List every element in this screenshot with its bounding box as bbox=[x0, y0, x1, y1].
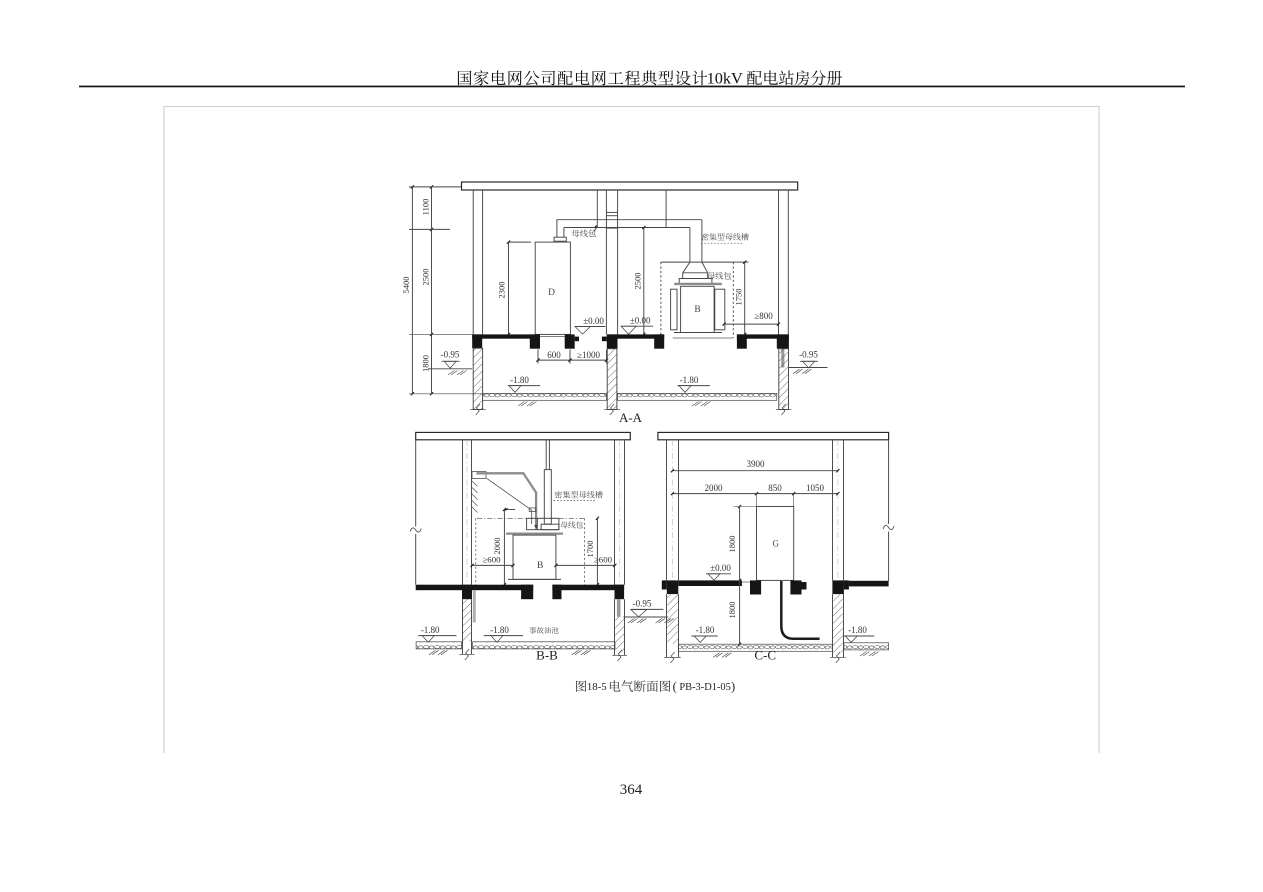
svg-text:±0.00: ±0.00 bbox=[583, 316, 604, 326]
svg-text:-1.80: -1.80 bbox=[421, 625, 440, 635]
svg-text:-0.95: -0.95 bbox=[633, 599, 652, 609]
svg-text:3900: 3900 bbox=[747, 459, 766, 469]
svg-text:-1.80: -1.80 bbox=[680, 375, 699, 385]
svg-text:600: 600 bbox=[547, 350, 561, 360]
svg-text:2500: 2500 bbox=[421, 269, 431, 286]
svg-text:): ) bbox=[731, 679, 735, 693]
svg-text:1800: 1800 bbox=[421, 355, 431, 372]
svg-text:≥1000: ≥1000 bbox=[577, 350, 600, 360]
svg-text:≥600: ≥600 bbox=[482, 554, 501, 564]
svg-text:-1.80: -1.80 bbox=[490, 625, 509, 635]
svg-text:18-5: 18-5 bbox=[587, 681, 607, 693]
svg-text:-1.80: -1.80 bbox=[696, 625, 715, 635]
svg-text:2500: 2500 bbox=[633, 273, 643, 290]
svg-text:10kV: 10kV bbox=[707, 68, 743, 87]
svg-text:1750: 1750 bbox=[733, 289, 743, 306]
svg-text:G: G bbox=[773, 539, 780, 549]
svg-text:-1.80: -1.80 bbox=[510, 375, 529, 385]
svg-text:1800: 1800 bbox=[727, 602, 737, 619]
svg-text:1050: 1050 bbox=[806, 483, 825, 493]
svg-text:1100: 1100 bbox=[421, 199, 431, 216]
svg-text:B-B: B-B bbox=[536, 648, 558, 663]
svg-text:1800: 1800 bbox=[727, 536, 737, 553]
svg-text:-1.80: -1.80 bbox=[848, 625, 867, 635]
svg-text:B: B bbox=[694, 305, 700, 315]
svg-text:±0.00: ±0.00 bbox=[710, 563, 731, 573]
svg-text:C-C: C-C bbox=[754, 648, 776, 663]
svg-text:B: B bbox=[537, 561, 543, 571]
svg-text:-0.95: -0.95 bbox=[799, 349, 818, 359]
svg-text:5400: 5400 bbox=[401, 277, 411, 294]
svg-text:A-A: A-A bbox=[619, 410, 643, 425]
svg-text:850: 850 bbox=[768, 483, 782, 493]
svg-text:≥600: ≥600 bbox=[594, 554, 613, 564]
svg-text:-0.95: -0.95 bbox=[441, 349, 460, 359]
svg-text:D: D bbox=[548, 288, 555, 298]
svg-text:≥800: ≥800 bbox=[754, 311, 773, 321]
svg-text:(: ( bbox=[673, 679, 677, 693]
svg-text:±0.00: ±0.00 bbox=[630, 316, 651, 326]
svg-text:2300: 2300 bbox=[497, 282, 507, 299]
svg-text:2000: 2000 bbox=[492, 538, 502, 555]
svg-text:364: 364 bbox=[620, 782, 643, 798]
svg-text:2000: 2000 bbox=[705, 483, 724, 493]
svg-text:PB-3-D1-05: PB-3-D1-05 bbox=[679, 682, 730, 693]
